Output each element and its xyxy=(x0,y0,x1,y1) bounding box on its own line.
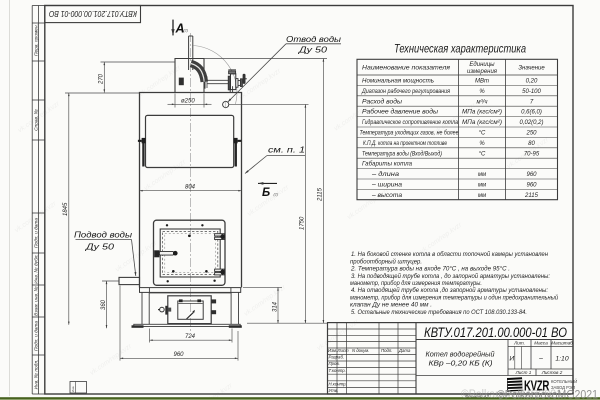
svg-text:0,6(6,0): 0,6(6,0) xyxy=(521,110,542,116)
svg-text:960: 960 xyxy=(526,172,537,178)
svg-text:314: 314 xyxy=(272,301,278,312)
svg-text:2. Температура воды на входе: 2. Температура воды на входе 70°С , на в… xyxy=(350,265,510,273)
svg-text:0,20: 0,20 xyxy=(526,79,538,85)
svg-text:Расход воды: Расход воды xyxy=(362,99,403,105)
svg-text:360: 360 xyxy=(101,299,107,310)
svg-text:Подп. и дата: Подп. и дата xyxy=(33,218,39,248)
svg-text:КВр –0,20 КБ (К): КВр –0,20 КБ (К) xyxy=(429,358,494,367)
svg-text:804: 804 xyxy=(185,184,196,190)
svg-text:пробоотборный штуцер.: пробоотборный штуцер. xyxy=(350,257,422,265)
svg-text:Инв.: Инв. xyxy=(71,386,75,392)
svg-text:м³/ч: м³/ч xyxy=(477,99,488,105)
svg-text:Габариты котла: Габариты котла xyxy=(362,162,413,168)
svg-text:мм: мм xyxy=(478,193,486,199)
svg-text:Перв. примен.: Перв. примен. xyxy=(33,24,39,56)
svg-text:5. Остальные технические треб: 5. Остальные технические требования по О… xyxy=(351,308,527,316)
svg-text:50-100: 50-100 xyxy=(522,89,541,95)
svg-text:(2): (2) xyxy=(184,29,188,33)
svg-text:Изм.: Изм. xyxy=(328,348,337,353)
svg-text:Масштаб: Масштаб xyxy=(551,340,573,345)
svg-text:Подп.: Подп. xyxy=(381,348,392,353)
svg-text:мм: мм xyxy=(478,183,486,189)
svg-text:Лит.: Лит. xyxy=(513,340,525,345)
svg-text:3. На подводящей трубе котла: 3. На подводящей трубе котла , до запорн… xyxy=(351,272,550,280)
svg-text:1845: 1845 xyxy=(63,202,69,216)
svg-text:– высота: – высота xyxy=(371,193,403,199)
svg-text:Диапазон рабочего регулировани: Диапазон рабочего регулирования xyxy=(361,89,451,95)
svg-text:960: 960 xyxy=(526,183,537,189)
svg-text:Взам. инв. №: Взам. инв. № xyxy=(33,286,39,316)
svg-text:МПа (кгс/см²): МПа (кгс/см²) xyxy=(462,120,502,126)
svg-text:4. На отводящей трубе котла ,: 4. На отводящей трубе котла ,до запорной… xyxy=(351,286,548,294)
svg-text:КОТЕЛЬНЫЙ: КОТЕЛЬНЫЙ xyxy=(551,379,577,384)
svg-text:%: % xyxy=(479,89,485,95)
svg-text:Справ. №: Справ. № xyxy=(33,109,39,131)
svg-text:МВт: МВт xyxy=(475,79,489,85)
svg-text:Инв. № подл.: Инв. № подл. xyxy=(33,360,39,390)
svg-text:Листов 2: Листов 2 xyxy=(541,370,563,375)
svg-text:Подвод воды: Подвод воды xyxy=(74,230,133,240)
svg-text:Лист: Лист xyxy=(337,348,349,353)
svg-text:Пров.: Пров. xyxy=(329,361,340,366)
svg-text:мм: мм xyxy=(478,172,486,178)
svg-text:80: 80 xyxy=(528,141,535,147)
svg-text:–: – xyxy=(538,356,543,363)
svg-text:измерения: измерения xyxy=(467,69,498,75)
svg-text:0,02(0,2): 0,02(0,2) xyxy=(519,120,543,126)
svg-text:МПа (кгс/см²): МПа (кгс/см²) xyxy=(462,110,502,116)
svg-text:°С: °С xyxy=(479,131,486,137)
svg-text:Подп. и дата: Подп. и дата xyxy=(33,321,39,351)
svg-text:1750: 1750 xyxy=(300,216,306,230)
svg-text:К.П.Д. котла на проектном топл: К.П.Д. котла на проектном топливе xyxy=(363,141,448,147)
svg-text:©PolkarpovoMG2021: ©PolkarpovoMG2021 xyxy=(497,388,598,400)
svg-text:Значение: Значение xyxy=(518,66,545,72)
svg-text:Инв. № дубл.: Инв. № дубл. xyxy=(33,254,39,284)
svg-text:(2): (2) xyxy=(274,193,278,197)
svg-text:– длина: – длина xyxy=(371,172,400,178)
svg-text:Наименование показателя: Наименование показателя xyxy=(362,66,451,72)
svg-text:клапан Ду не менее 40 мм .: клапан Ду не менее 40 мм . xyxy=(350,302,432,309)
svg-text:манометр, прибор для измерения: манометр, прибор для измерения температу… xyxy=(350,279,482,287)
svg-text:Т.контр.: Т.контр. xyxy=(329,368,346,373)
svg-text:КВТУ.017.201.00.000-01 ВО: КВТУ.017.201.00.000-01 ВО xyxy=(48,9,137,18)
svg-text:1:10: 1:10 xyxy=(555,356,568,363)
svg-text:Н.контр.: Н.контр. xyxy=(329,381,347,386)
svg-text:270: 270 xyxy=(99,73,105,85)
svg-text:°С: °С xyxy=(479,151,486,157)
svg-text:Отвод воды: Отвод воды xyxy=(286,34,342,44)
svg-text:Ду 50: Ду 50 xyxy=(298,45,328,55)
svg-text:Техническая характеристика: Техническая характеристика xyxy=(394,44,526,56)
svg-text:70-95: 70-95 xyxy=(524,151,540,157)
svg-text:Рабочее давление воды: Рабочее давление воды xyxy=(362,110,439,116)
svg-text:N докум.: N докум. xyxy=(352,348,369,353)
svg-text:Температура уходящих газов, не: Температура уходящих газов, не более xyxy=(360,131,460,137)
svg-text:Б: Б xyxy=(262,187,270,199)
svg-text:Гидравлическое сопротивление к: Гидравлическое сопротивление котла xyxy=(362,120,459,126)
svg-text:КВТУ.017.201.00.000-01 ВО: КВТУ.017.201.00.000-01 ВО xyxy=(424,325,567,340)
svg-text:2115: 2115 xyxy=(524,193,539,199)
svg-text:Лист 1: Лист 1 xyxy=(515,370,532,375)
svg-text:2115: 2115 xyxy=(318,187,324,202)
svg-text:Котел водогрейный: Котел водогрейный xyxy=(426,350,495,359)
svg-text:Номинальная мощность: Номинальная мощность xyxy=(362,79,434,85)
svg-text:И: И xyxy=(509,356,514,363)
svg-text:1. На боковой стенке котла в: 1. На боковой стенке котла в области топ… xyxy=(351,250,548,258)
svg-text:724: 724 xyxy=(185,334,196,340)
svg-text:Масса: Масса xyxy=(534,340,548,345)
svg-text:Температура воды (Вход/Выход): Температура воды (Вход/Выход) xyxy=(362,151,442,157)
svg-text:манометр, прибор для измерения: манометр, прибор для измерения температу… xyxy=(350,293,558,301)
svg-text:%: % xyxy=(479,141,485,147)
svg-text:250: 250 xyxy=(525,131,537,137)
svg-text:Разраб.: Разраб. xyxy=(329,355,345,360)
svg-text:см. п. 1: см. п. 1 xyxy=(268,145,305,155)
svg-text:960: 960 xyxy=(174,352,185,358)
svg-text:Единицы: Единицы xyxy=(469,62,495,68)
svg-text:ø250: ø250 xyxy=(181,98,195,104)
svg-text:Утв.: Утв. xyxy=(329,388,339,393)
svg-text:– ширина: – ширина xyxy=(371,183,403,189)
svg-text:Дата: Дата xyxy=(398,348,411,353)
svg-text:Ду 50: Ду 50 xyxy=(85,242,115,252)
